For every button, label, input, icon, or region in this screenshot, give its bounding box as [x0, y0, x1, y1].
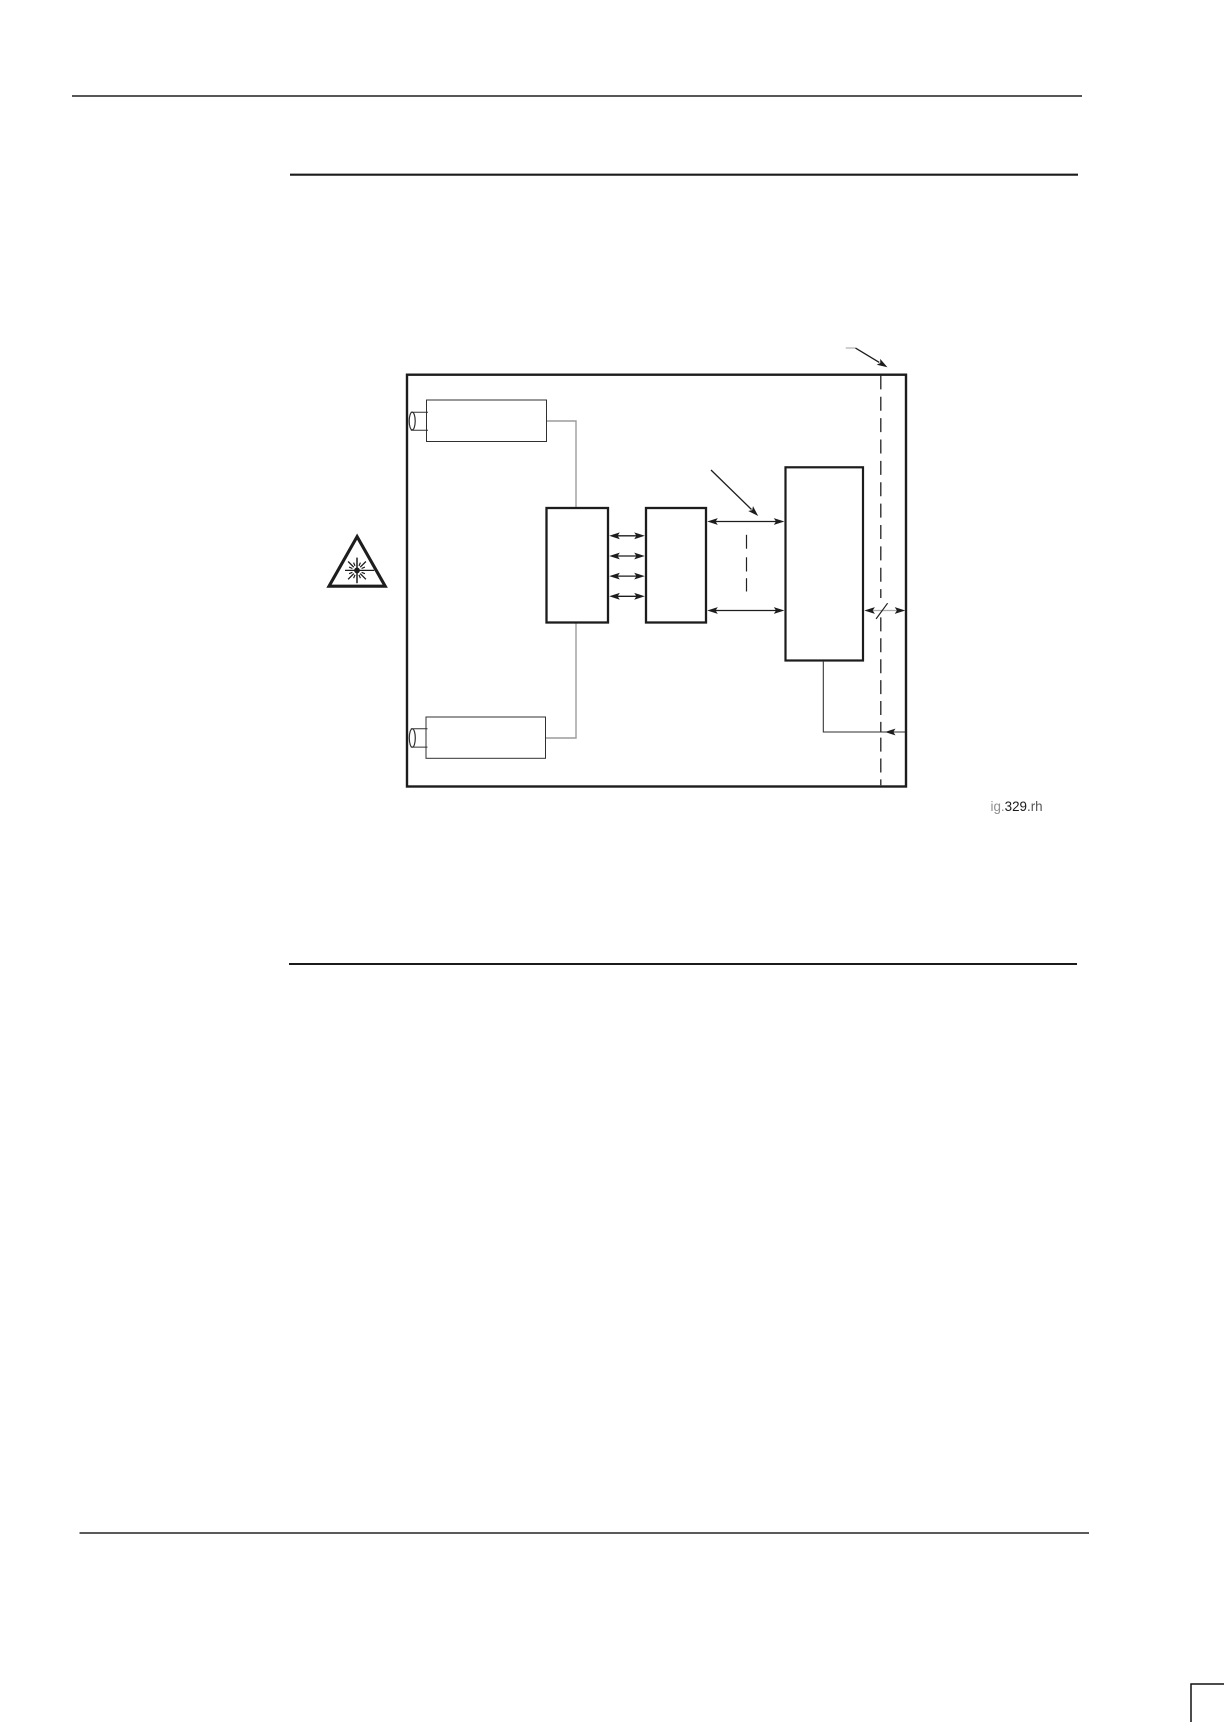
svg-text:ig.329.rh: ig.329.rh — [991, 799, 1043, 814]
